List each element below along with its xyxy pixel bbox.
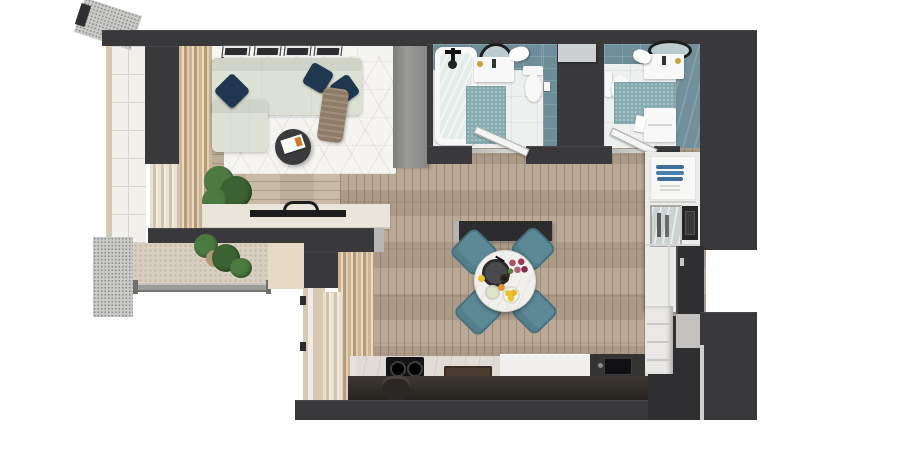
bottle [657,213,661,237]
right-lower-outer-wall [700,312,757,420]
counter-white-top [500,354,592,378]
bar-stool [382,376,410,400]
kitchen-sink [604,358,632,375]
sofa-chaise [212,100,268,152]
kitchen-drawer-unit [645,306,673,376]
soap-dish-gold [675,58,681,64]
blue-dish-stack [656,171,684,175]
balustrade-post [133,280,138,294]
bottom-wall [295,400,707,420]
counter-dark-top [590,354,650,378]
counter-edge-highlight [700,345,704,420]
drawer-line [647,341,671,343]
shower-head [448,60,457,69]
entry-door-handle [680,258,684,266]
lower-balcony-mesh-railing [93,237,133,317]
built-in-oven [680,206,698,240]
faucet [492,59,496,68]
lemon [478,275,485,282]
partition-end-cap [454,221,459,241]
cabinet-shelf-divider [650,201,696,203]
kitchen-window-curtains-light [323,292,341,402]
bathroom1-vanity-sink [474,57,514,82]
soap-dish-gold [477,61,483,67]
balcony-tiled-floor [112,46,146,246]
wardrobe [393,46,428,168]
window-hardware [300,296,306,305]
bottle [665,215,669,237]
toilet-paper-holder [544,82,550,91]
white-plate-stack [660,185,680,187]
oven-window [685,211,695,235]
window-glass-line [308,288,313,402]
blue-dish-stack [656,165,684,169]
window-wall-stub [303,252,341,288]
counter-left-cap [350,356,356,378]
blue-dish-stack [657,177,683,181]
drawer-line [647,323,671,325]
cabinet-seam [668,246,670,310]
living-room-left-wall [145,46,179,164]
burner [407,361,423,377]
flower-bouquet [505,256,530,279]
bathroom1-teal-wall-right [543,44,557,148]
bathroom-front-wall-center [526,146,612,164]
burner [390,361,406,377]
window-frame-column [303,288,325,402]
window-hardware [300,342,306,351]
cooktop [386,357,424,377]
washing-machine [644,108,676,142]
plant-foliage [230,258,252,278]
magazine-accent [294,136,302,146]
sink-faucet [598,363,603,368]
bathroom1-front-wall-left [427,146,472,164]
balcony-window-sill [268,243,304,289]
white-plate-stack [660,189,680,191]
drawer-line [647,359,671,361]
glass-display-cabinet [650,205,682,247]
fruit-bowl-lemons [502,286,520,304]
faucet [662,56,666,65]
balcony-plants [190,232,256,286]
entry-door-open [676,246,704,316]
right-outer-wall [700,30,757,250]
wall-end-cap [374,228,384,252]
bathroom1-wall-cabinet [558,44,596,62]
tv-stand-arc [283,201,319,216]
toilet1-bowl [525,74,542,102]
floor-plan-render [0,0,900,450]
washer-lid-line [648,124,672,126]
corner-cabinet-dark [648,374,674,420]
